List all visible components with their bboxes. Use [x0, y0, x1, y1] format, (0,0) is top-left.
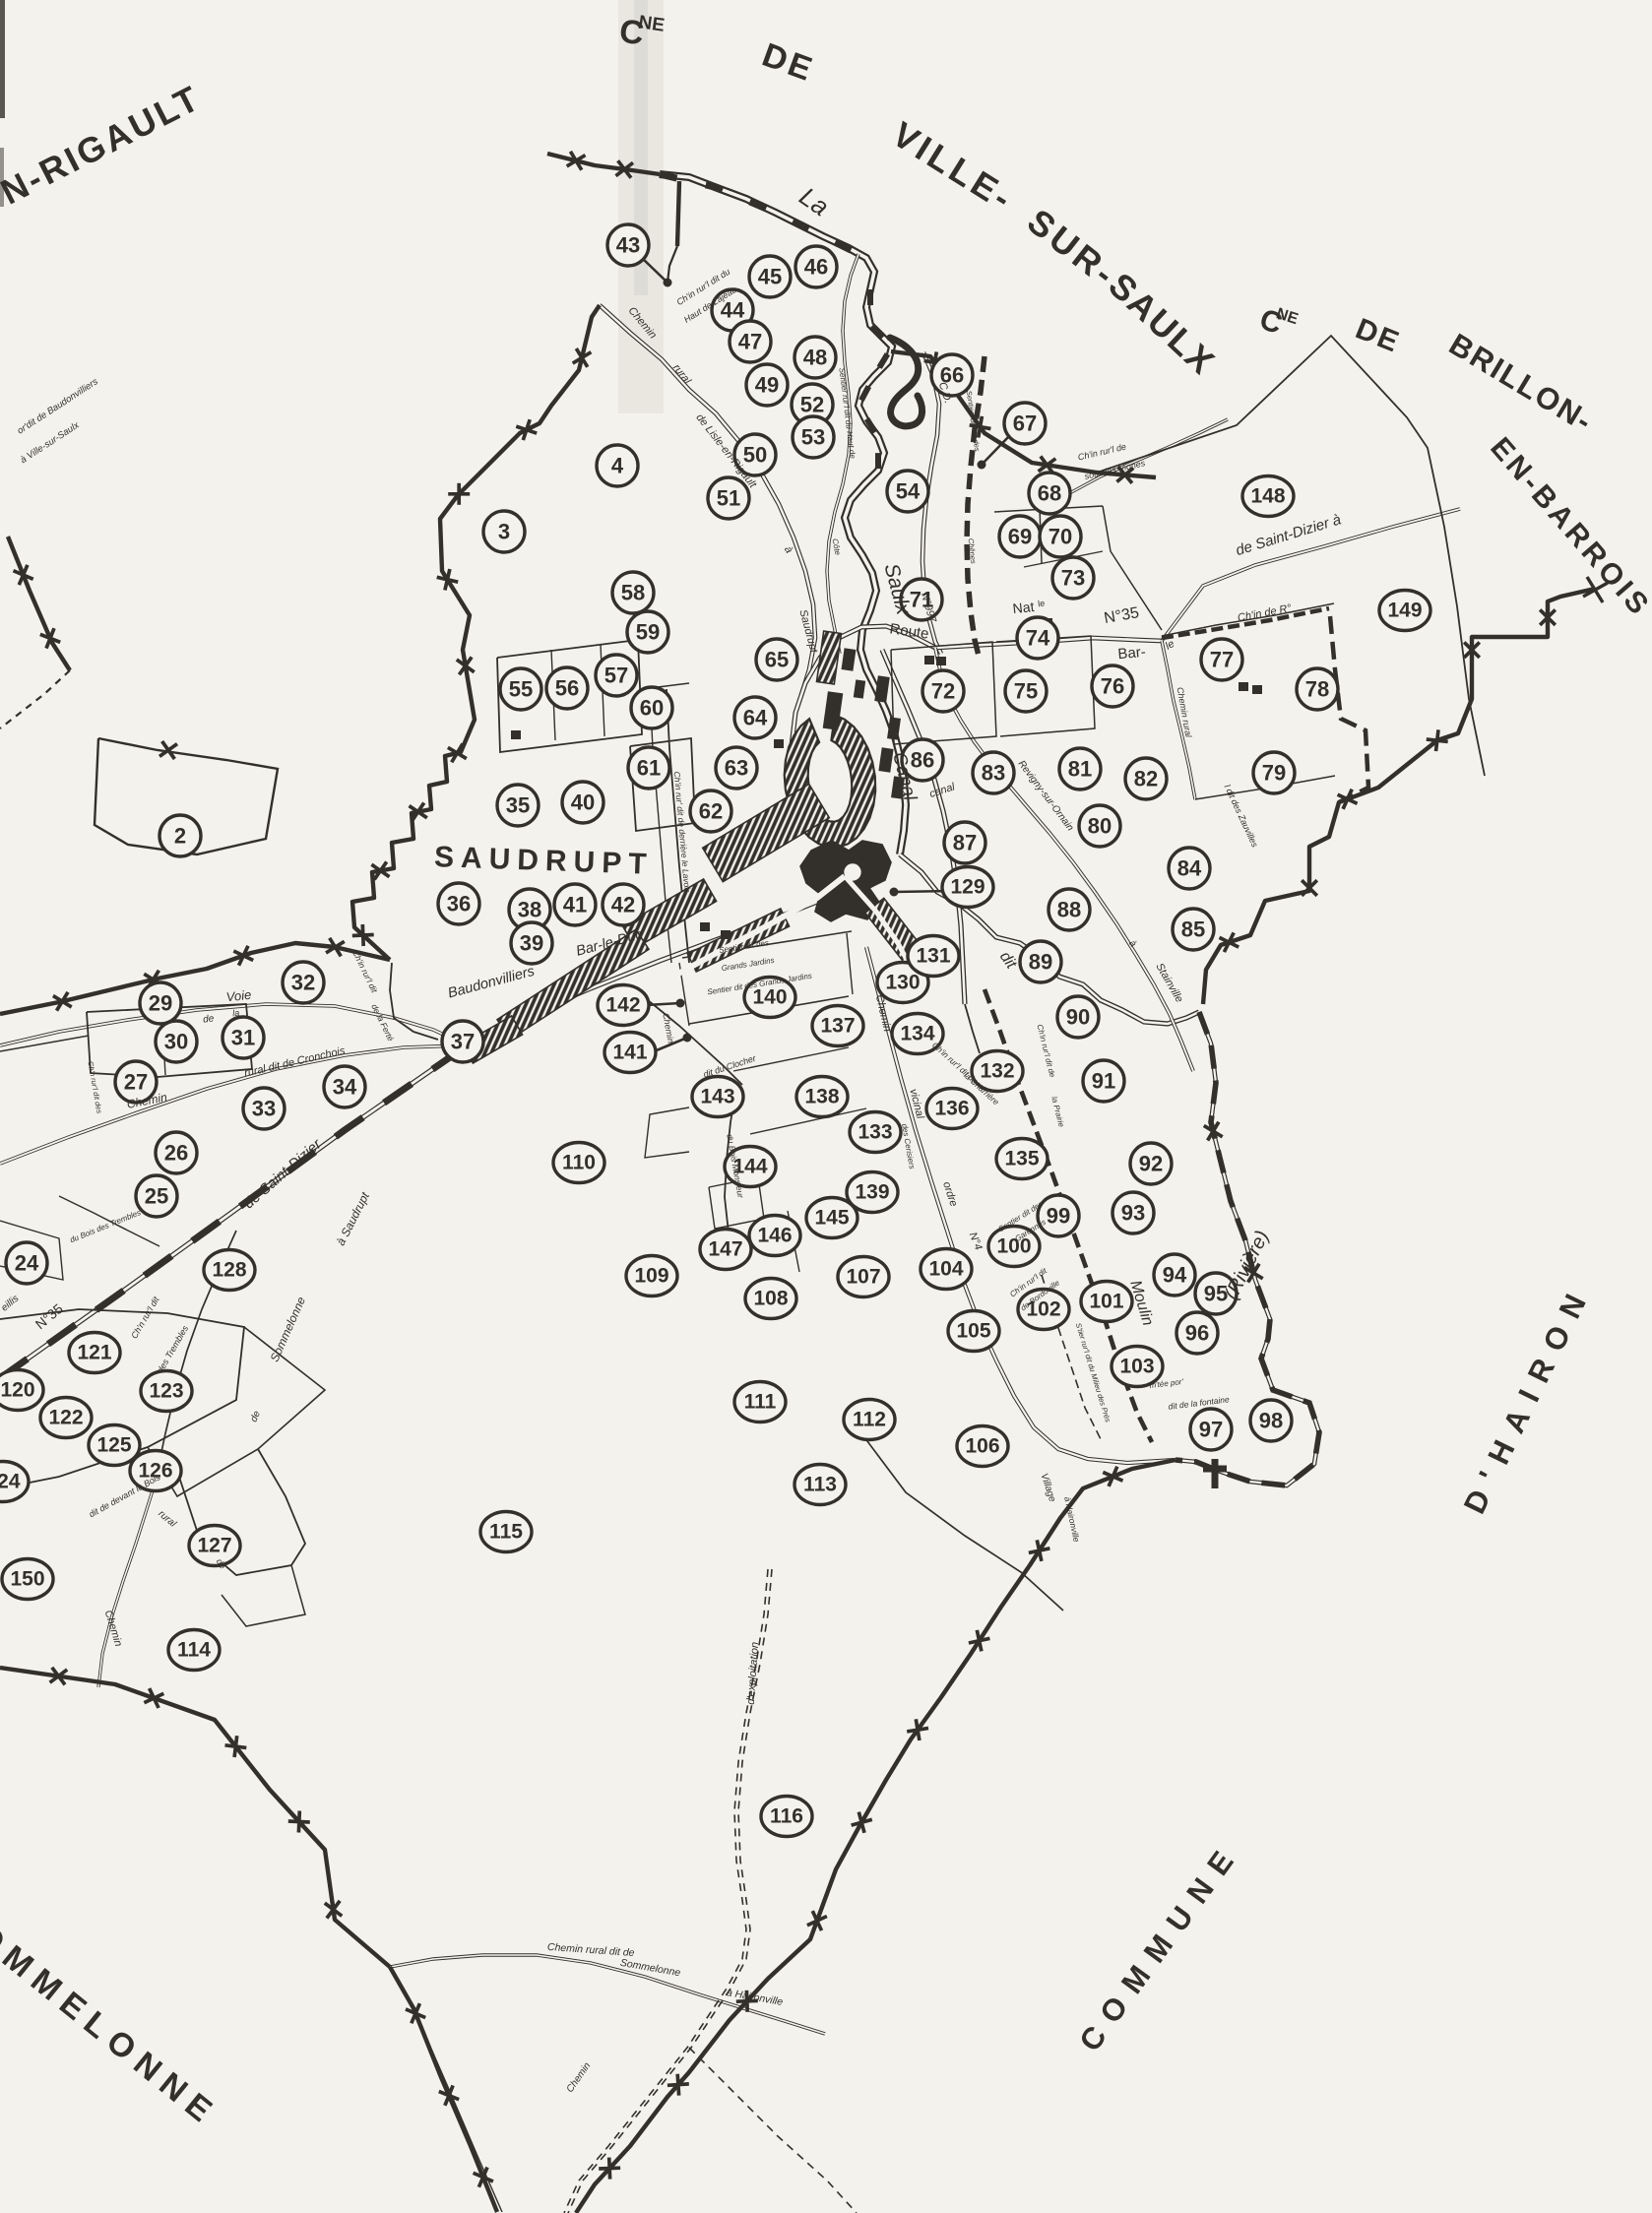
svg-text:94: 94 — [1163, 1263, 1187, 1288]
svg-text:4: 4 — [611, 454, 624, 478]
svg-text:143: 143 — [700, 1086, 734, 1108]
svg-text:56: 56 — [555, 676, 579, 701]
svg-text:75: 75 — [1014, 679, 1038, 704]
svg-text:Voie: Voie — [225, 987, 252, 1005]
svg-text:127: 127 — [197, 1535, 231, 1557]
svg-text:129: 129 — [950, 876, 985, 899]
svg-text:72: 72 — [931, 679, 955, 704]
svg-text:122: 122 — [48, 1407, 83, 1429]
svg-text:84: 84 — [1177, 856, 1202, 881]
svg-text:55: 55 — [509, 677, 533, 702]
svg-text:124: 124 — [0, 1471, 21, 1493]
svg-text:85: 85 — [1181, 917, 1205, 942]
svg-text:132: 132 — [980, 1060, 1014, 1083]
svg-text:96: 96 — [1185, 1321, 1209, 1346]
svg-text:149: 149 — [1387, 600, 1422, 622]
svg-text:26: 26 — [164, 1141, 188, 1166]
svg-text:la: la — [232, 1008, 240, 1019]
svg-text:31: 31 — [231, 1026, 255, 1050]
svg-text:24: 24 — [15, 1251, 39, 1276]
svg-text:60: 60 — [640, 696, 664, 721]
svg-text:111: 111 — [744, 1391, 777, 1414]
svg-text:3: 3 — [498, 520, 510, 544]
svg-text:98: 98 — [1259, 1409, 1283, 1433]
svg-text:42: 42 — [611, 893, 635, 917]
svg-text:113: 113 — [803, 1474, 837, 1496]
svg-text:73: 73 — [1061, 566, 1085, 591]
svg-text:107: 107 — [846, 1266, 880, 1289]
svg-text:116: 116 — [770, 1805, 803, 1828]
svg-text:30: 30 — [164, 1030, 188, 1054]
svg-text:32: 32 — [291, 971, 315, 995]
svg-text:92: 92 — [1139, 1152, 1163, 1176]
svg-text:27: 27 — [124, 1070, 148, 1095]
svg-text:51: 51 — [717, 486, 740, 511]
svg-text:50: 50 — [743, 443, 767, 468]
svg-text:101: 101 — [1089, 1291, 1123, 1313]
svg-text:133: 133 — [858, 1121, 892, 1144]
svg-text:65: 65 — [765, 648, 789, 672]
svg-text:145: 145 — [814, 1207, 849, 1230]
svg-text:35: 35 — [506, 793, 530, 818]
svg-text:121: 121 — [77, 1342, 111, 1364]
svg-text:48: 48 — [803, 346, 827, 370]
svg-text:57: 57 — [604, 664, 628, 688]
svg-text:90: 90 — [1066, 1005, 1090, 1030]
svg-text:89: 89 — [1029, 950, 1052, 975]
svg-text:37: 37 — [451, 1030, 475, 1054]
svg-text:69: 69 — [1008, 525, 1032, 549]
svg-text:74: 74 — [1026, 626, 1050, 651]
svg-text:105: 105 — [956, 1320, 990, 1343]
svg-text:115: 115 — [489, 1521, 523, 1544]
svg-text:39: 39 — [520, 931, 543, 956]
svg-text:38: 38 — [518, 898, 541, 922]
svg-text:125: 125 — [96, 1434, 131, 1457]
svg-text:86: 86 — [911, 748, 934, 773]
svg-text:76: 76 — [1101, 674, 1124, 699]
svg-text:87: 87 — [953, 831, 977, 855]
svg-text:45: 45 — [758, 265, 782, 289]
svg-text:141: 141 — [612, 1042, 647, 1064]
svg-text:140: 140 — [752, 986, 787, 1009]
svg-text:25: 25 — [145, 1184, 168, 1209]
svg-text:112: 112 — [853, 1409, 886, 1431]
svg-text:93: 93 — [1121, 1201, 1145, 1226]
svg-text:88: 88 — [1057, 898, 1081, 922]
svg-text:61: 61 — [637, 756, 661, 781]
svg-text:135: 135 — [1004, 1148, 1039, 1170]
svg-text:68: 68 — [1038, 481, 1061, 506]
svg-text:58: 58 — [621, 581, 645, 605]
svg-text:79: 79 — [1262, 761, 1286, 786]
svg-text:99: 99 — [1047, 1204, 1070, 1229]
svg-text:63: 63 — [725, 756, 748, 781]
svg-text:54: 54 — [896, 479, 921, 504]
svg-text:34: 34 — [333, 1075, 357, 1100]
svg-text:109: 109 — [634, 1265, 668, 1288]
svg-text:77: 77 — [1210, 648, 1234, 672]
svg-text:139: 139 — [855, 1181, 889, 1204]
svg-text:108: 108 — [753, 1288, 788, 1310]
svg-text:130: 130 — [885, 972, 920, 994]
svg-text:104: 104 — [928, 1258, 963, 1281]
svg-text:103: 103 — [1119, 1356, 1154, 1378]
svg-text:134: 134 — [900, 1023, 934, 1045]
svg-text:67: 67 — [1013, 411, 1037, 436]
svg-text:123: 123 — [149, 1380, 183, 1403]
svg-text:78: 78 — [1305, 677, 1329, 702]
svg-text:33: 33 — [252, 1097, 276, 1121]
svg-text:47: 47 — [738, 330, 762, 354]
svg-text:97: 97 — [1199, 1418, 1223, 1442]
svg-text:137: 137 — [820, 1015, 855, 1038]
svg-text:146: 146 — [757, 1225, 792, 1247]
svg-text:59: 59 — [636, 620, 660, 645]
svg-text:NE: NE — [637, 12, 666, 35]
svg-text:41: 41 — [563, 893, 587, 917]
svg-text:62: 62 — [699, 799, 723, 824]
svg-text:91: 91 — [1092, 1069, 1115, 1094]
svg-text:110: 110 — [562, 1152, 596, 1174]
svg-text:120: 120 — [0, 1379, 34, 1402]
svg-text:40: 40 — [571, 790, 595, 815]
svg-text:106: 106 — [965, 1435, 999, 1458]
svg-text:2: 2 — [174, 824, 186, 849]
svg-text:142: 142 — [605, 994, 640, 1017]
svg-text:81: 81 — [1068, 757, 1092, 782]
svg-text:64: 64 — [743, 706, 768, 730]
svg-text:83: 83 — [982, 761, 1005, 786]
svg-text:Nat: Nat — [1012, 599, 1035, 616]
svg-text:114: 114 — [177, 1639, 211, 1662]
svg-text:36: 36 — [447, 892, 471, 917]
svg-text:52: 52 — [800, 393, 824, 417]
svg-text:29: 29 — [149, 991, 172, 1016]
svg-text:131: 131 — [916, 945, 950, 968]
svg-text:136: 136 — [934, 1098, 969, 1120]
svg-text:49: 49 — [755, 373, 779, 398]
svg-text:43: 43 — [616, 233, 640, 258]
svg-text:53: 53 — [801, 425, 825, 450]
svg-text:150: 150 — [10, 1568, 44, 1591]
svg-text:80: 80 — [1088, 814, 1112, 839]
svg-text:46: 46 — [804, 255, 828, 280]
svg-text:Bar-: Bar- — [1117, 644, 1147, 663]
svg-text:148: 148 — [1250, 485, 1285, 508]
svg-text:128: 128 — [212, 1259, 246, 1282]
svg-text:70: 70 — [1048, 525, 1072, 549]
svg-text:de: de — [203, 1013, 216, 1025]
svg-text:82: 82 — [1134, 767, 1158, 791]
svg-text:138: 138 — [804, 1086, 839, 1108]
svg-text:le: le — [1038, 599, 1046, 609]
svg-text:147: 147 — [708, 1238, 742, 1261]
